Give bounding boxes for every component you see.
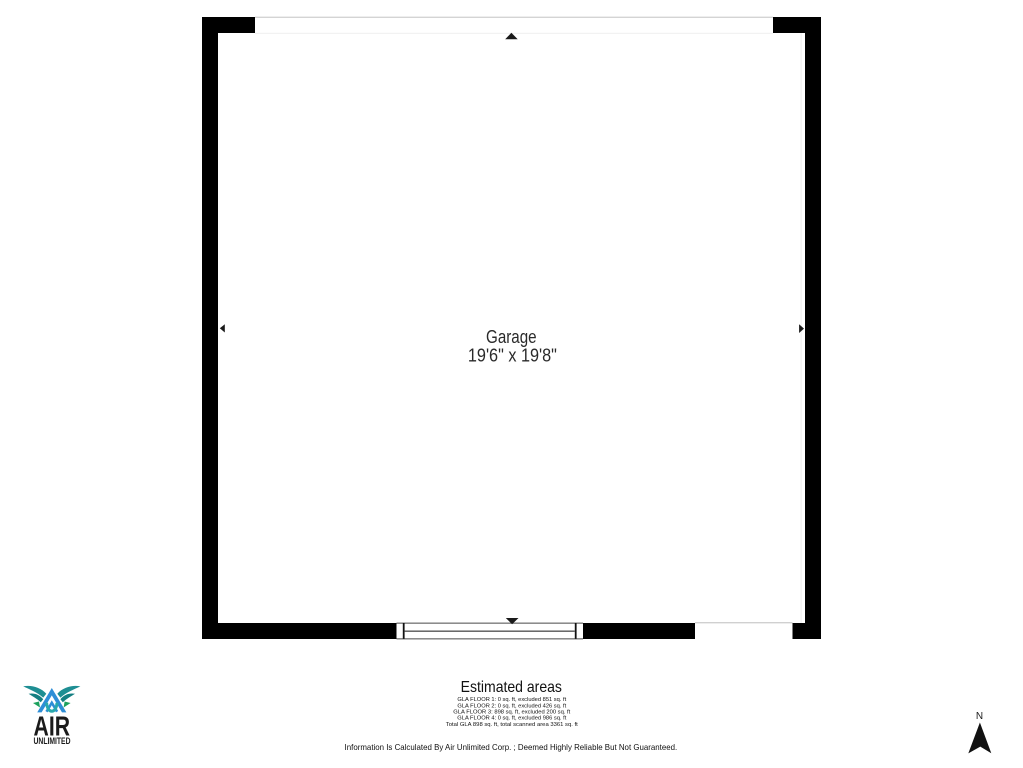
svg-text:GLA FLOOR 2: 0 sq. ft, exclude: GLA FLOOR 2: 0 sq. ft, excluded 426 sq. … [457, 703, 566, 709]
svg-text:GLA FLOOR 4: 0 sq. ft, exclude: GLA FLOOR 4: 0 sq. ft, excluded 986 sq. … [457, 716, 566, 722]
svg-text:N: N [976, 711, 983, 722]
svg-text:19'6" x 19'8": 19'6" x 19'8" [468, 345, 557, 366]
svg-text:Estimated areas: Estimated areas [461, 679, 562, 696]
svg-text:UNLIMITED: UNLIMITED [34, 736, 71, 746]
svg-text:GLA FLOOR 3: 898 sq. ft, exclu: GLA FLOOR 3: 898 sq. ft, excluded 200 sq… [453, 710, 570, 716]
svg-text:GLA FLOOR 1: 0 sq. ft, exclude: GLA FLOOR 1: 0 sq. ft, excluded 851 sq. … [457, 697, 566, 703]
svg-text:Information Is Calculated By A: Information Is Calculated By Air Unlimit… [345, 742, 678, 752]
svg-text:Total GLA 898 sq. ft, total sc: Total GLA 898 sq. ft, total scanned area… [446, 722, 578, 728]
